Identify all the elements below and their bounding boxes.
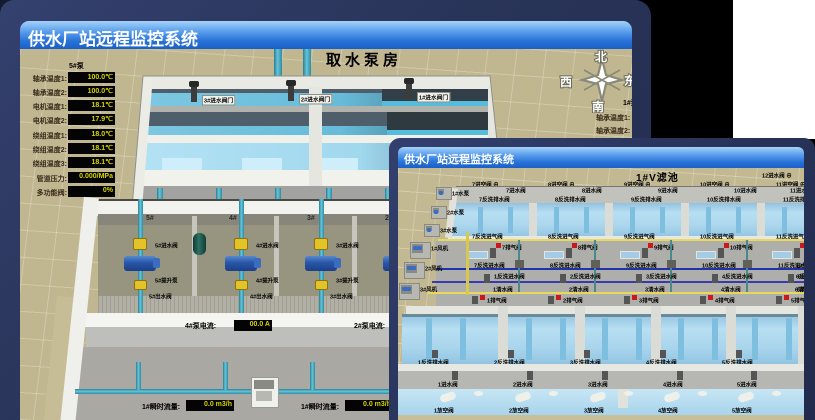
svg-text:西: 西 xyxy=(560,75,572,89)
svg-text:东: 东 xyxy=(624,73,632,88)
svg-text:北: 北 xyxy=(595,49,607,64)
svg-text:南: 南 xyxy=(592,99,604,113)
